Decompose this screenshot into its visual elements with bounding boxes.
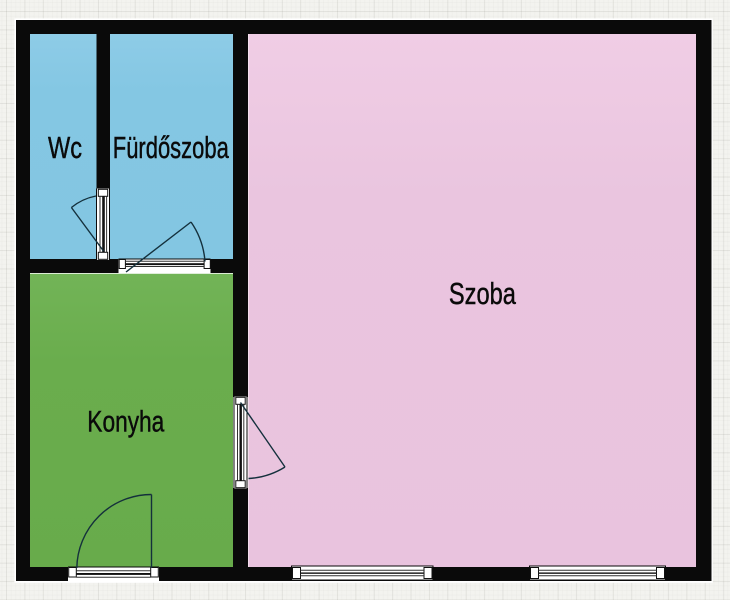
svg-text:Fürdőszoba: Fürdőszoba xyxy=(113,131,229,165)
svg-text:Szoba: Szoba xyxy=(449,277,516,311)
svg-text:Konyha: Konyha xyxy=(87,406,164,439)
svg-text:Wc: Wc xyxy=(48,131,82,165)
